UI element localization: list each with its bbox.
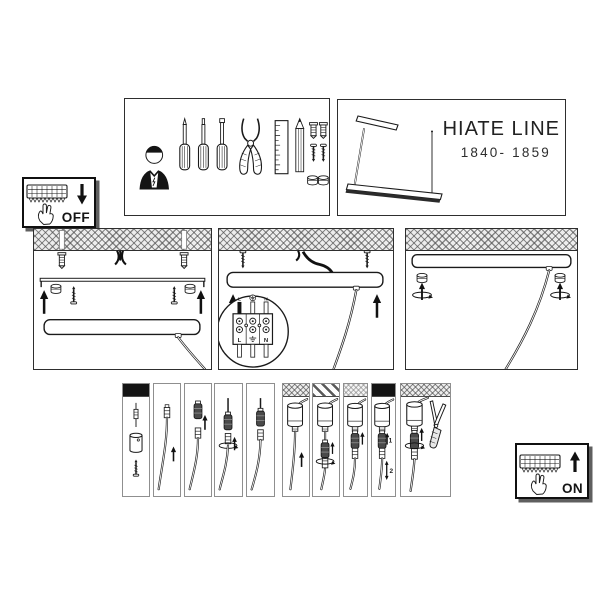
suspension-cable xyxy=(334,290,357,369)
tools-illustration xyxy=(125,99,329,215)
arrow-up-icon xyxy=(570,452,580,473)
cable-step-6-panel xyxy=(282,383,310,497)
wall-anchor-icon xyxy=(180,253,188,269)
product-title: HIATE LINE xyxy=(443,118,560,141)
cable-connector-icon xyxy=(378,431,386,448)
cable-fitting-icon xyxy=(195,428,201,438)
cable-fitting-icon xyxy=(322,458,328,468)
cable-step-8-illustration xyxy=(344,384,367,496)
cable-fitting-icon xyxy=(164,408,170,418)
cable-gripper-body-icon xyxy=(130,433,142,452)
cable-step-3-panel xyxy=(184,383,212,497)
cable-step-7-panel xyxy=(312,383,340,497)
neutral-wire xyxy=(264,302,268,314)
arrow-up-icon xyxy=(330,442,334,454)
cable-connector-icon xyxy=(194,401,202,419)
cap-nut-icon xyxy=(308,176,318,185)
cable-connector-icon xyxy=(351,431,359,448)
cable-fitting-icon xyxy=(379,448,385,458)
screw-icon xyxy=(320,144,326,162)
arrow-up-down-icon xyxy=(385,461,389,480)
drill-hole xyxy=(59,230,64,249)
arrow-up-icon xyxy=(419,283,425,300)
cable-step-7-illustration xyxy=(313,384,339,496)
electrician-icon xyxy=(140,146,169,190)
screw-icon xyxy=(71,286,77,304)
cable-step-1-illustration xyxy=(123,384,149,496)
wall-anchor-icon xyxy=(58,253,66,269)
cap-nut-icon xyxy=(318,176,328,185)
mount-step-1-illustration xyxy=(34,229,211,369)
arrow-down-icon xyxy=(77,184,87,205)
cap-nut-icon xyxy=(417,273,427,282)
pendant-lamp-icon xyxy=(338,100,458,217)
cable-connector-icon xyxy=(257,408,265,426)
suspension-cable xyxy=(252,440,261,489)
cap-nut-icon xyxy=(185,284,195,293)
cable-connector-icon xyxy=(224,412,232,430)
cable-fitting-icon xyxy=(352,448,358,458)
cable-step-3-illustration xyxy=(185,384,211,496)
drill-hole xyxy=(182,230,187,249)
power-on-label: ON xyxy=(562,481,583,496)
cable-step-1-panel xyxy=(122,383,150,497)
screw-icon xyxy=(133,460,139,477)
screwdriver-icon xyxy=(198,119,208,170)
cable-step-5-illustration xyxy=(247,384,274,496)
cable-step-10-illustration xyxy=(401,384,450,496)
arrow-up-icon xyxy=(202,415,207,430)
cable-gripper-icon xyxy=(318,403,333,431)
arrow-up-icon xyxy=(299,452,304,467)
cable-connector-icon xyxy=(321,440,329,458)
suspension-cable xyxy=(506,270,549,369)
cable-step-4-panel xyxy=(214,383,243,497)
screw-icon xyxy=(171,286,177,304)
mains-wires-icon xyxy=(296,251,332,274)
terminal-block-detail: L N L xyxy=(219,295,288,367)
screwdriver-icon xyxy=(217,119,227,170)
live-wire xyxy=(237,302,241,314)
step-number: 1 xyxy=(389,438,393,445)
earth-wire xyxy=(251,302,255,314)
hand-icon xyxy=(38,204,53,225)
power-on-box: ON xyxy=(515,443,589,499)
mounting-bracket-icon xyxy=(40,278,205,281)
pliers-icon xyxy=(240,119,262,175)
terminal-label: L xyxy=(238,338,242,344)
cap-nut-icon xyxy=(51,284,61,293)
cable-gripper-icon xyxy=(375,403,390,431)
pencil-icon xyxy=(296,119,304,172)
canopy-icon xyxy=(44,320,200,335)
mains-wires-icon xyxy=(115,251,126,265)
terminal-strip-icon xyxy=(520,455,560,472)
wall-anchor-icon xyxy=(319,123,327,139)
step-number: 2 xyxy=(390,468,394,475)
needle-icon xyxy=(134,403,138,427)
mount-step-1-panel xyxy=(33,228,212,370)
suspension-cable xyxy=(190,438,198,489)
instruction-sheet: OFF xyxy=(0,0,600,600)
earth-symbol-icon xyxy=(250,295,256,301)
canopy-icon xyxy=(412,255,571,268)
mount-step-2-panel: L N L xyxy=(218,228,394,370)
screw-icon xyxy=(364,251,370,269)
product-model: 1840- 1859 xyxy=(461,145,551,160)
arrow-up-icon xyxy=(171,447,176,462)
power-off-label: OFF xyxy=(62,210,90,225)
cable-step-4-illustration xyxy=(215,384,242,496)
cable-step-2-panel xyxy=(153,383,181,497)
arrow-up-icon xyxy=(40,290,48,314)
bracket-tabs xyxy=(41,281,204,287)
arrow-up-icon xyxy=(419,428,424,441)
screw-icon xyxy=(311,144,317,162)
cap-nut-icon xyxy=(555,273,565,282)
canopy-icon xyxy=(227,272,383,287)
cable-step-2-illustration xyxy=(154,384,180,496)
wall-anchor-icon xyxy=(310,123,318,139)
mount-step-2-illustration: L N L xyxy=(219,229,393,369)
arrow-up-icon xyxy=(373,294,381,318)
wire-cutters-icon xyxy=(425,401,446,449)
cable-gripper-icon xyxy=(407,402,422,431)
cable-fitting-icon xyxy=(225,433,231,443)
mount-step-3-panel xyxy=(405,228,578,370)
cable-step-6-illustration xyxy=(283,384,309,496)
product-box: HIATE LINE 1840- 1859 xyxy=(337,99,566,216)
cable-step-9-illustration: 1 2 xyxy=(372,384,395,496)
cable-step-8-panel xyxy=(343,383,368,497)
mount-step-3-illustration xyxy=(406,229,577,369)
cable-fitting-icon xyxy=(412,449,418,460)
cable-step-5-panel xyxy=(246,383,275,497)
arrow-up-icon xyxy=(197,290,205,314)
arrow-up-icon xyxy=(557,283,563,300)
tools-box xyxy=(124,98,330,216)
cable-fitting-icon xyxy=(258,430,264,440)
arrow-up-icon xyxy=(360,432,364,445)
ruler-icon xyxy=(275,121,288,174)
terminal-label: N xyxy=(264,338,268,344)
cable-step-9-panel: 1 2 xyxy=(371,383,396,497)
terminal-label: L xyxy=(238,296,241,302)
cable-step-10-panel xyxy=(400,383,451,497)
cable-connector-icon xyxy=(410,430,418,448)
screw-icon xyxy=(240,251,246,269)
screwdriver-icon xyxy=(180,119,190,170)
hand-icon xyxy=(531,474,546,495)
cable-gripper-icon xyxy=(348,403,363,431)
terminal-strip-icon xyxy=(27,185,67,202)
cable-gripper-icon xyxy=(288,403,303,431)
power-off-box: OFF xyxy=(22,177,96,228)
